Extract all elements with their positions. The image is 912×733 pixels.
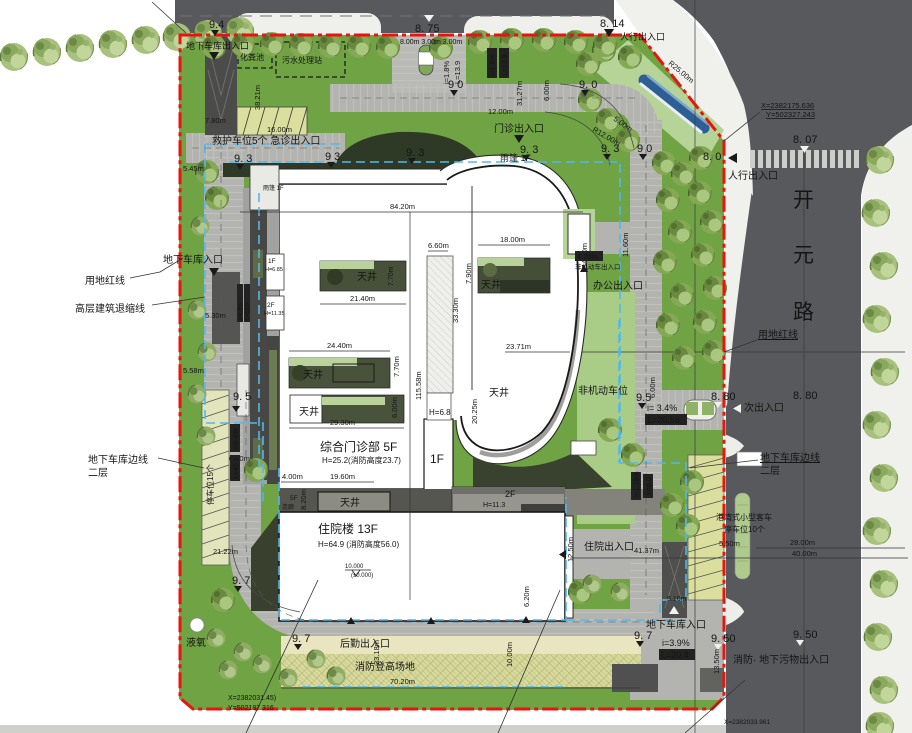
svg-text:7.70m: 7.70m	[388, 266, 395, 286]
svg-text:X=2382175.636: X=2382175.636	[761, 101, 814, 110]
svg-text:i=1.8%: i=1.8%	[490, 54, 497, 76]
svg-text:9 0: 9 0	[637, 143, 652, 155]
svg-text:高层建筑退缩线: 高层建筑退缩线	[75, 302, 145, 315]
svg-text:地下车库入口: 地下车库入口	[646, 618, 706, 631]
svg-text:7.80m: 7.80m	[205, 116, 226, 125]
svg-text:21.40m: 21.40m	[350, 294, 375, 303]
svg-text:连廊: 连廊	[282, 503, 294, 511]
svg-text:10.00m: 10.00m	[505, 642, 514, 667]
svg-text:元: 元	[793, 244, 814, 267]
svg-text:2F: 2F	[267, 302, 275, 309]
svg-text:港湾式小型客车: 港湾式小型客车	[716, 512, 772, 522]
svg-text:5.45m: 5.45m	[183, 164, 204, 173]
svg-text:办公出入口: 办公出入口	[593, 279, 643, 292]
svg-text:用地红线: 用地红线	[85, 274, 125, 287]
svg-text:人行出入口: 人行出入口	[728, 169, 778, 182]
svg-text:(±0.000): (±0.000)	[351, 573, 373, 579]
svg-text:液氧: 液氧	[186, 636, 206, 649]
svg-text:8. 07: 8. 07	[793, 134, 817, 146]
svg-text:8. 80: 8. 80	[711, 391, 735, 403]
svg-text:8. 14: 8. 14	[600, 18, 624, 30]
svg-text:L=20.58: L=20.58	[647, 415, 680, 425]
svg-text:21.22m: 21.22m	[213, 547, 238, 556]
svg-text:9. 3: 9. 3	[406, 147, 424, 159]
svg-text:Y=502327.243: Y=502327.243	[766, 110, 815, 119]
svg-text:地下车库入口: 地下车库入口	[163, 253, 223, 266]
svg-text:H=64.9 (消防高度56.0): H=64.9 (消防高度56.0)	[318, 539, 399, 549]
svg-text:6.60m: 6.60m	[428, 241, 449, 250]
svg-text:9. 50: 9. 50	[711, 633, 735, 645]
svg-text:70.20m: 70.20m	[390, 677, 415, 686]
svg-text:6.00m: 6.00m	[390, 397, 399, 418]
svg-text:6.00m: 6.00m	[542, 80, 551, 101]
svg-text:33.30m: 33.30m	[451, 298, 460, 323]
svg-text:4.20m: 4.20m	[577, 252, 598, 261]
svg-text:19.60m: 19.60m	[330, 472, 355, 481]
svg-text:L=20.4: L=20.4	[661, 650, 689, 660]
svg-text:X=2382033.961: X=2382033.961	[724, 719, 770, 726]
svg-text:9. 7: 9. 7	[292, 633, 310, 645]
svg-text:28.00m: 28.00m	[790, 538, 815, 547]
svg-text:开: 开	[793, 189, 814, 212]
svg-text:23.18m: 23.18m	[372, 640, 381, 665]
svg-text:38.21m: 38.21m	[253, 85, 262, 110]
svg-text:10.000: 10.000	[345, 564, 364, 570]
svg-text:天井: 天井	[340, 496, 360, 509]
svg-text:二层: 二层	[760, 465, 780, 477]
svg-text:雨篷 1F: 雨篷 1F	[263, 184, 284, 192]
svg-text:12.00m: 12.00m	[488, 107, 513, 116]
svg-text:H=6.85: H=6.85	[265, 267, 283, 273]
svg-text:化粪池: 化粪池	[240, 52, 264, 62]
svg-text:i= 3.4%: i= 3.4%	[647, 403, 677, 413]
svg-text:2F: 2F	[505, 489, 516, 499]
svg-text:5.50m: 5.50m	[719, 539, 740, 548]
svg-text:8. 0: 8. 0	[703, 151, 721, 163]
svg-text:9. 5: 9. 5	[233, 391, 251, 403]
svg-text:L=62.0: L=62.0	[245, 303, 251, 320]
svg-text:非机动车位: 非机动车位	[578, 384, 628, 397]
svg-text:次出入口: 次出入口	[744, 401, 784, 414]
svg-text:地下车库边线: 地下车库边线	[88, 453, 148, 466]
svg-text:8. 80: 8. 80	[793, 390, 817, 402]
svg-text:9.4: 9.4	[209, 19, 224, 31]
svg-text:综合门诊部 5F: 综合门诊部 5F	[320, 439, 397, 454]
svg-text:L=45.1: L=45.1	[233, 457, 240, 479]
svg-text:天井: 天井	[299, 405, 319, 418]
svg-text:29.30m: 29.30m	[330, 418, 355, 427]
svg-text:9 0: 9 0	[448, 79, 463, 91]
svg-text:救护车位5个 急诊出入口: 救护车位5个 急诊出入口	[212, 134, 320, 147]
svg-text:1F: 1F	[430, 452, 444, 466]
svg-text:天井: 天井	[481, 278, 501, 291]
svg-text:40.00m: 40.00m	[792, 549, 817, 558]
svg-text:地下车库出入口: 地下车库出入口	[186, 40, 249, 51]
svg-text:9. 7: 9. 7	[232, 575, 250, 587]
svg-text:31.27m: 31.27m	[515, 81, 524, 106]
svg-text:5.58m: 5.58m	[183, 366, 204, 375]
svg-text:4.00m: 4.00m	[282, 472, 303, 481]
svg-text:5.10m: 5.10m	[667, 596, 687, 603]
svg-text:住院楼 13F: 住院楼 13F	[318, 521, 378, 536]
svg-text:天井: 天井	[303, 368, 323, 381]
svg-text:7.90m: 7.90m	[464, 263, 473, 284]
svg-text:9 3: 9 3	[325, 151, 340, 163]
svg-text:门诊出入口: 门诊出入口	[494, 122, 544, 135]
svg-text:i=0.4%: i=0.4%	[233, 428, 240, 450]
svg-text:12.50m: 12.50m	[566, 537, 575, 562]
svg-text:9. 0: 9. 0	[579, 79, 597, 91]
svg-text:9. 50: 9. 50	[793, 629, 817, 641]
svg-text:i=1.16%: i=1.16%	[634, 472, 641, 498]
svg-text:H=11.3: H=11.3	[483, 502, 505, 509]
svg-text:i=3.9%: i=3.9%	[662, 638, 690, 648]
svg-text:1F: 1F	[268, 258, 276, 265]
svg-text:20.25m: 20.25m	[470, 399, 479, 424]
svg-text:5F: 5F	[290, 495, 298, 502]
svg-text:消防· 地下污物出入口: 消防· 地下污物出入口	[733, 653, 829, 666]
svg-text:8.00m 3.00m 3.00m: 8.00m 3.00m 3.00m	[400, 39, 462, 46]
svg-text:天井: 天井	[357, 270, 377, 283]
svg-text:84.20m: 84.20m	[390, 202, 415, 211]
svg-text:人行出入口: 人行出入口	[620, 31, 665, 42]
svg-text:住院出入口: 住院出入口	[584, 540, 634, 553]
svg-text:污水处理站: 污水处理站	[282, 55, 322, 65]
svg-text:41.37m: 41.37m	[634, 546, 659, 555]
svg-text:H=25.2(消防高度23.7): H=25.2(消防高度23.7)	[322, 455, 401, 465]
svg-text:9. 3: 9. 3	[520, 144, 538, 156]
svg-text:11.60m: 11.60m	[621, 233, 630, 257]
svg-text:8.20m: 8.20m	[299, 489, 308, 510]
svg-text:X=2382031.45): X=2382031.45)	[228, 695, 276, 702]
svg-text:H=6.8: H=6.8	[429, 408, 451, 417]
svg-text:8. 75: 8. 75	[415, 23, 439, 35]
svg-text:用地红线: 用地红线	[758, 328, 798, 341]
svg-text:9. 3: 9. 3	[601, 143, 619, 155]
svg-text:地下车库边线: 地下车库边线	[760, 451, 820, 464]
svg-text:Y=502187.316: Y=502187.316	[228, 705, 274, 712]
svg-text:5.30m: 5.30m	[205, 311, 226, 320]
svg-text:i=0.3%: i=0.3%	[238, 303, 244, 320]
svg-text:13.50m: 13.50m	[712, 649, 721, 674]
svg-text:24.40m: 24.40m	[327, 341, 352, 350]
svg-text:7.70m: 7.70m	[392, 356, 401, 377]
svg-text:后勤出入口: 后勤出入口	[340, 637, 390, 650]
svg-text:停车位15个: 停车位15个	[205, 464, 215, 505]
svg-text:9. 3: 9. 3	[234, 153, 252, 165]
svg-text:23.71m: 23.71m	[506, 342, 531, 351]
svg-text:16.00m: 16.00m	[267, 125, 292, 134]
svg-text:18.00m: 18.00m	[500, 235, 525, 244]
svg-text:9. 7: 9. 7	[634, 630, 652, 642]
svg-text:停车位10个: 停车位10个	[724, 524, 765, 534]
svg-text:消防登高场地: 消防登高场地	[355, 660, 415, 673]
svg-text:L=13.9: L=13.9	[502, 54, 509, 76]
svg-text:H=11.35: H=11.35	[264, 311, 285, 317]
svg-text:路: 路	[793, 301, 814, 324]
svg-text:天井: 天井	[489, 386, 509, 399]
svg-text:二层: 二层	[88, 467, 108, 479]
svg-text:115.58m: 115.58m	[414, 371, 423, 400]
svg-text:6.20m: 6.20m	[522, 586, 531, 607]
svg-text:L=6.0: L=6.0	[646, 477, 653, 495]
